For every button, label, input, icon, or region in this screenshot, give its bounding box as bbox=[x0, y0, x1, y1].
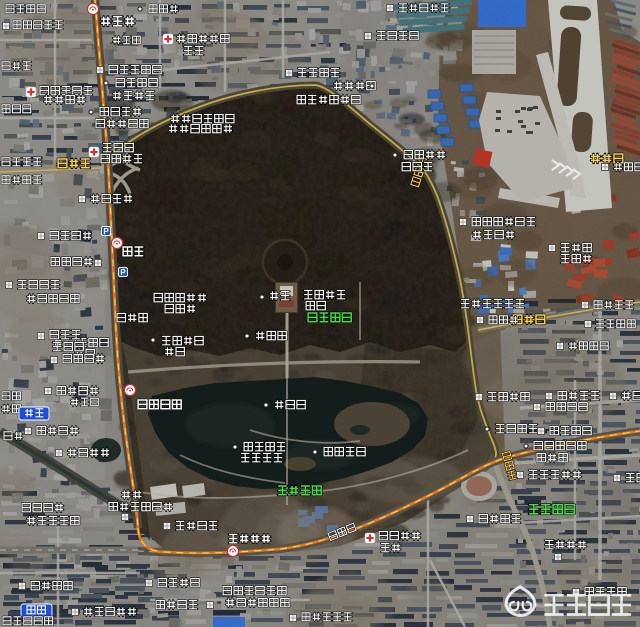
svg-text:P: P bbox=[103, 227, 109, 236]
svg-text:P: P bbox=[120, 268, 126, 277]
